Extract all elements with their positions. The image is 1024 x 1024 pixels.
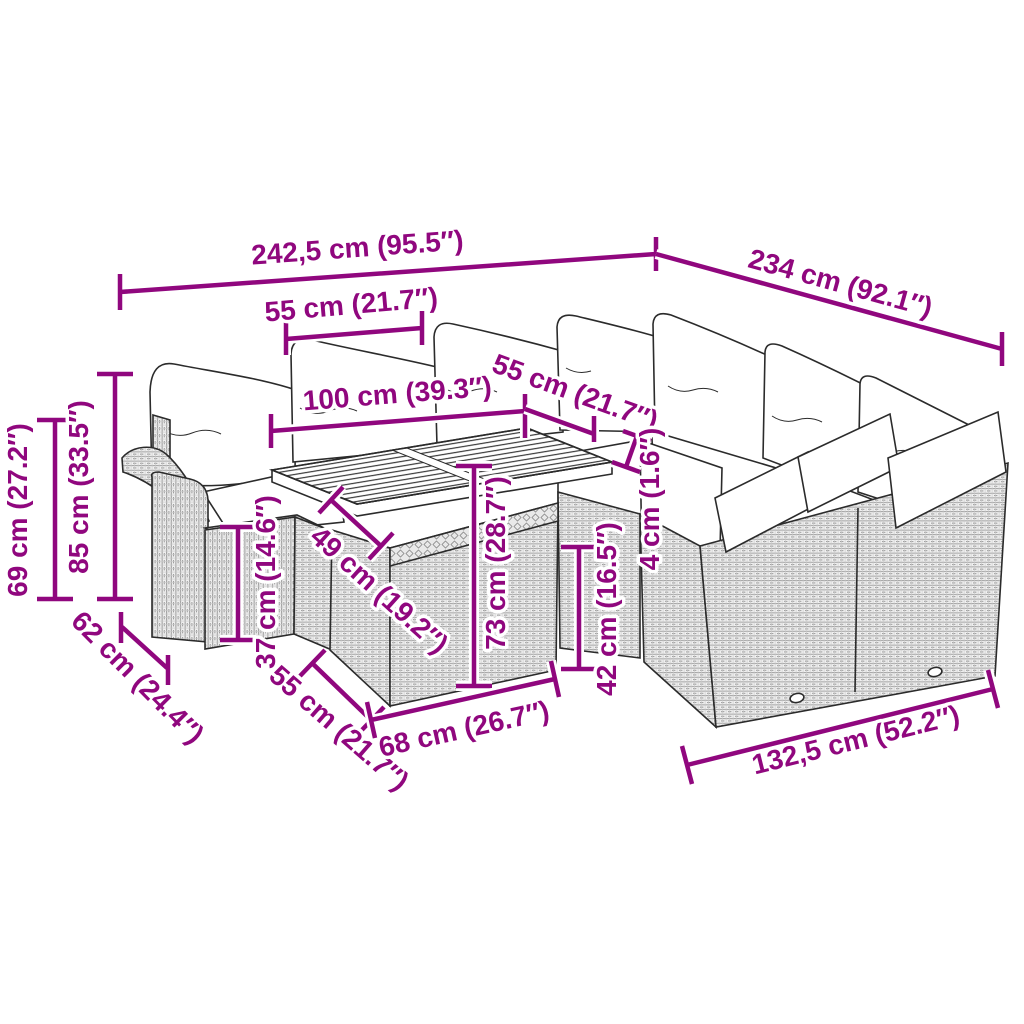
- dim-label: 85 cm (33.5″): [63, 400, 94, 574]
- dim-label: 4 cm (1.6″): [634, 428, 665, 571]
- dim-label: 73 cm (28.7″): [480, 476, 511, 650]
- dim-label: 37 cm (14.6″): [250, 495, 281, 669]
- dim-label: 69 cm (27.2″): [2, 423, 33, 597]
- product-dimension-diagram: 242,5 cm (95.5″) 234 cm (92.1″) 55 cm (2…: [0, 0, 1024, 1024]
- dim-label: 42 cm (16.5″): [591, 522, 622, 696]
- diagram-canvas: 242,5 cm (95.5″) 234 cm (92.1″) 55 cm (2…: [0, 0, 1024, 1024]
- armrest-panel: [152, 472, 208, 642]
